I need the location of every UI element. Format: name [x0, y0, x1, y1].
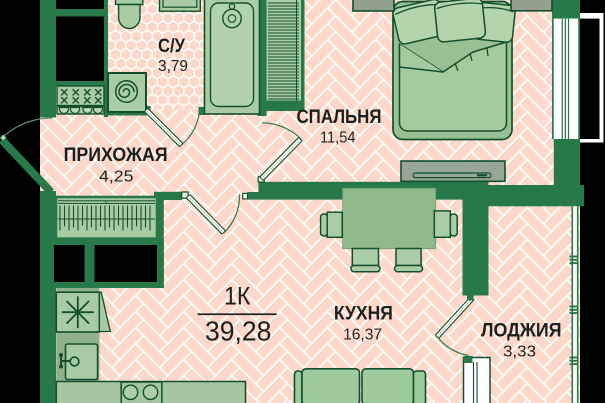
svg-text:3,79: 3,79 [158, 58, 188, 75]
svg-text:С/У: С/У [158, 35, 186, 57]
svg-text:СПАЛЬНЯ: СПАЛЬНЯ [297, 106, 382, 128]
svg-text:4,25: 4,25 [99, 169, 134, 186]
svg-text:39,28: 39,28 [205, 315, 271, 346]
svg-text:3,33: 3,33 [503, 344, 536, 361]
svg-text:16,37: 16,37 [343, 327, 382, 344]
svg-text:КУХНЯ: КУХНЯ [334, 303, 393, 325]
svg-text:ЛОДЖИЯ: ЛОДЖИЯ [481, 320, 562, 342]
svg-text:1К: 1К [224, 283, 251, 311]
svg-text:11,54: 11,54 [320, 130, 356, 147]
svg-text:ПРИХОЖАЯ: ПРИХОЖАЯ [64, 144, 168, 166]
